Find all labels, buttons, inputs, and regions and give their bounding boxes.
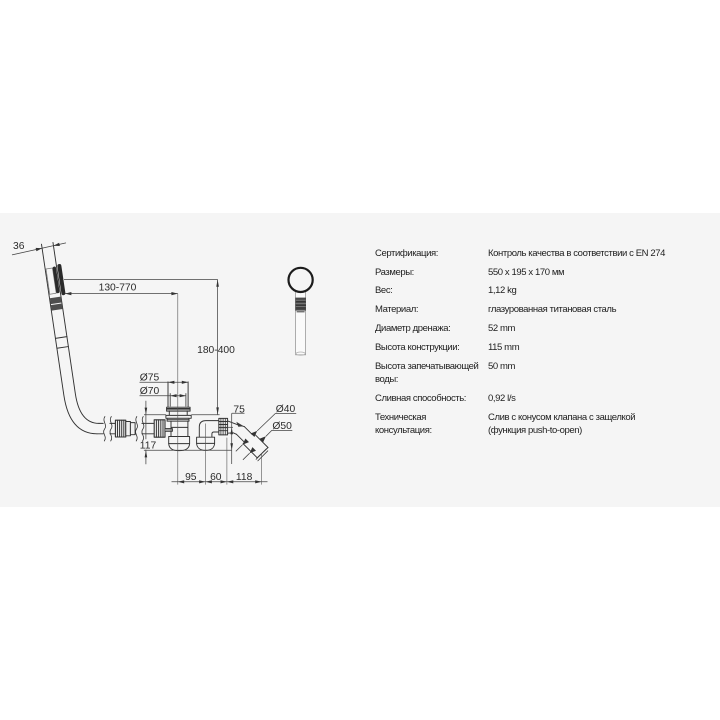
svg-text:118: 118 [236,472,253,483]
svg-text:Ø40: Ø40 [276,404,296,415]
svg-text:130-770: 130-770 [99,283,137,294]
svg-text:36: 36 [13,241,25,252]
svg-text:180-400: 180-400 [197,345,235,356]
svg-text:117: 117 [140,441,157,452]
svg-text:Ø50: Ø50 [272,421,292,432]
svg-text:Ø75: Ø75 [140,372,160,383]
svg-text:95: 95 [185,472,197,483]
svg-text:75: 75 [233,404,245,415]
svg-text:Ø70: Ø70 [140,386,160,397]
svg-text:60: 60 [210,472,222,483]
